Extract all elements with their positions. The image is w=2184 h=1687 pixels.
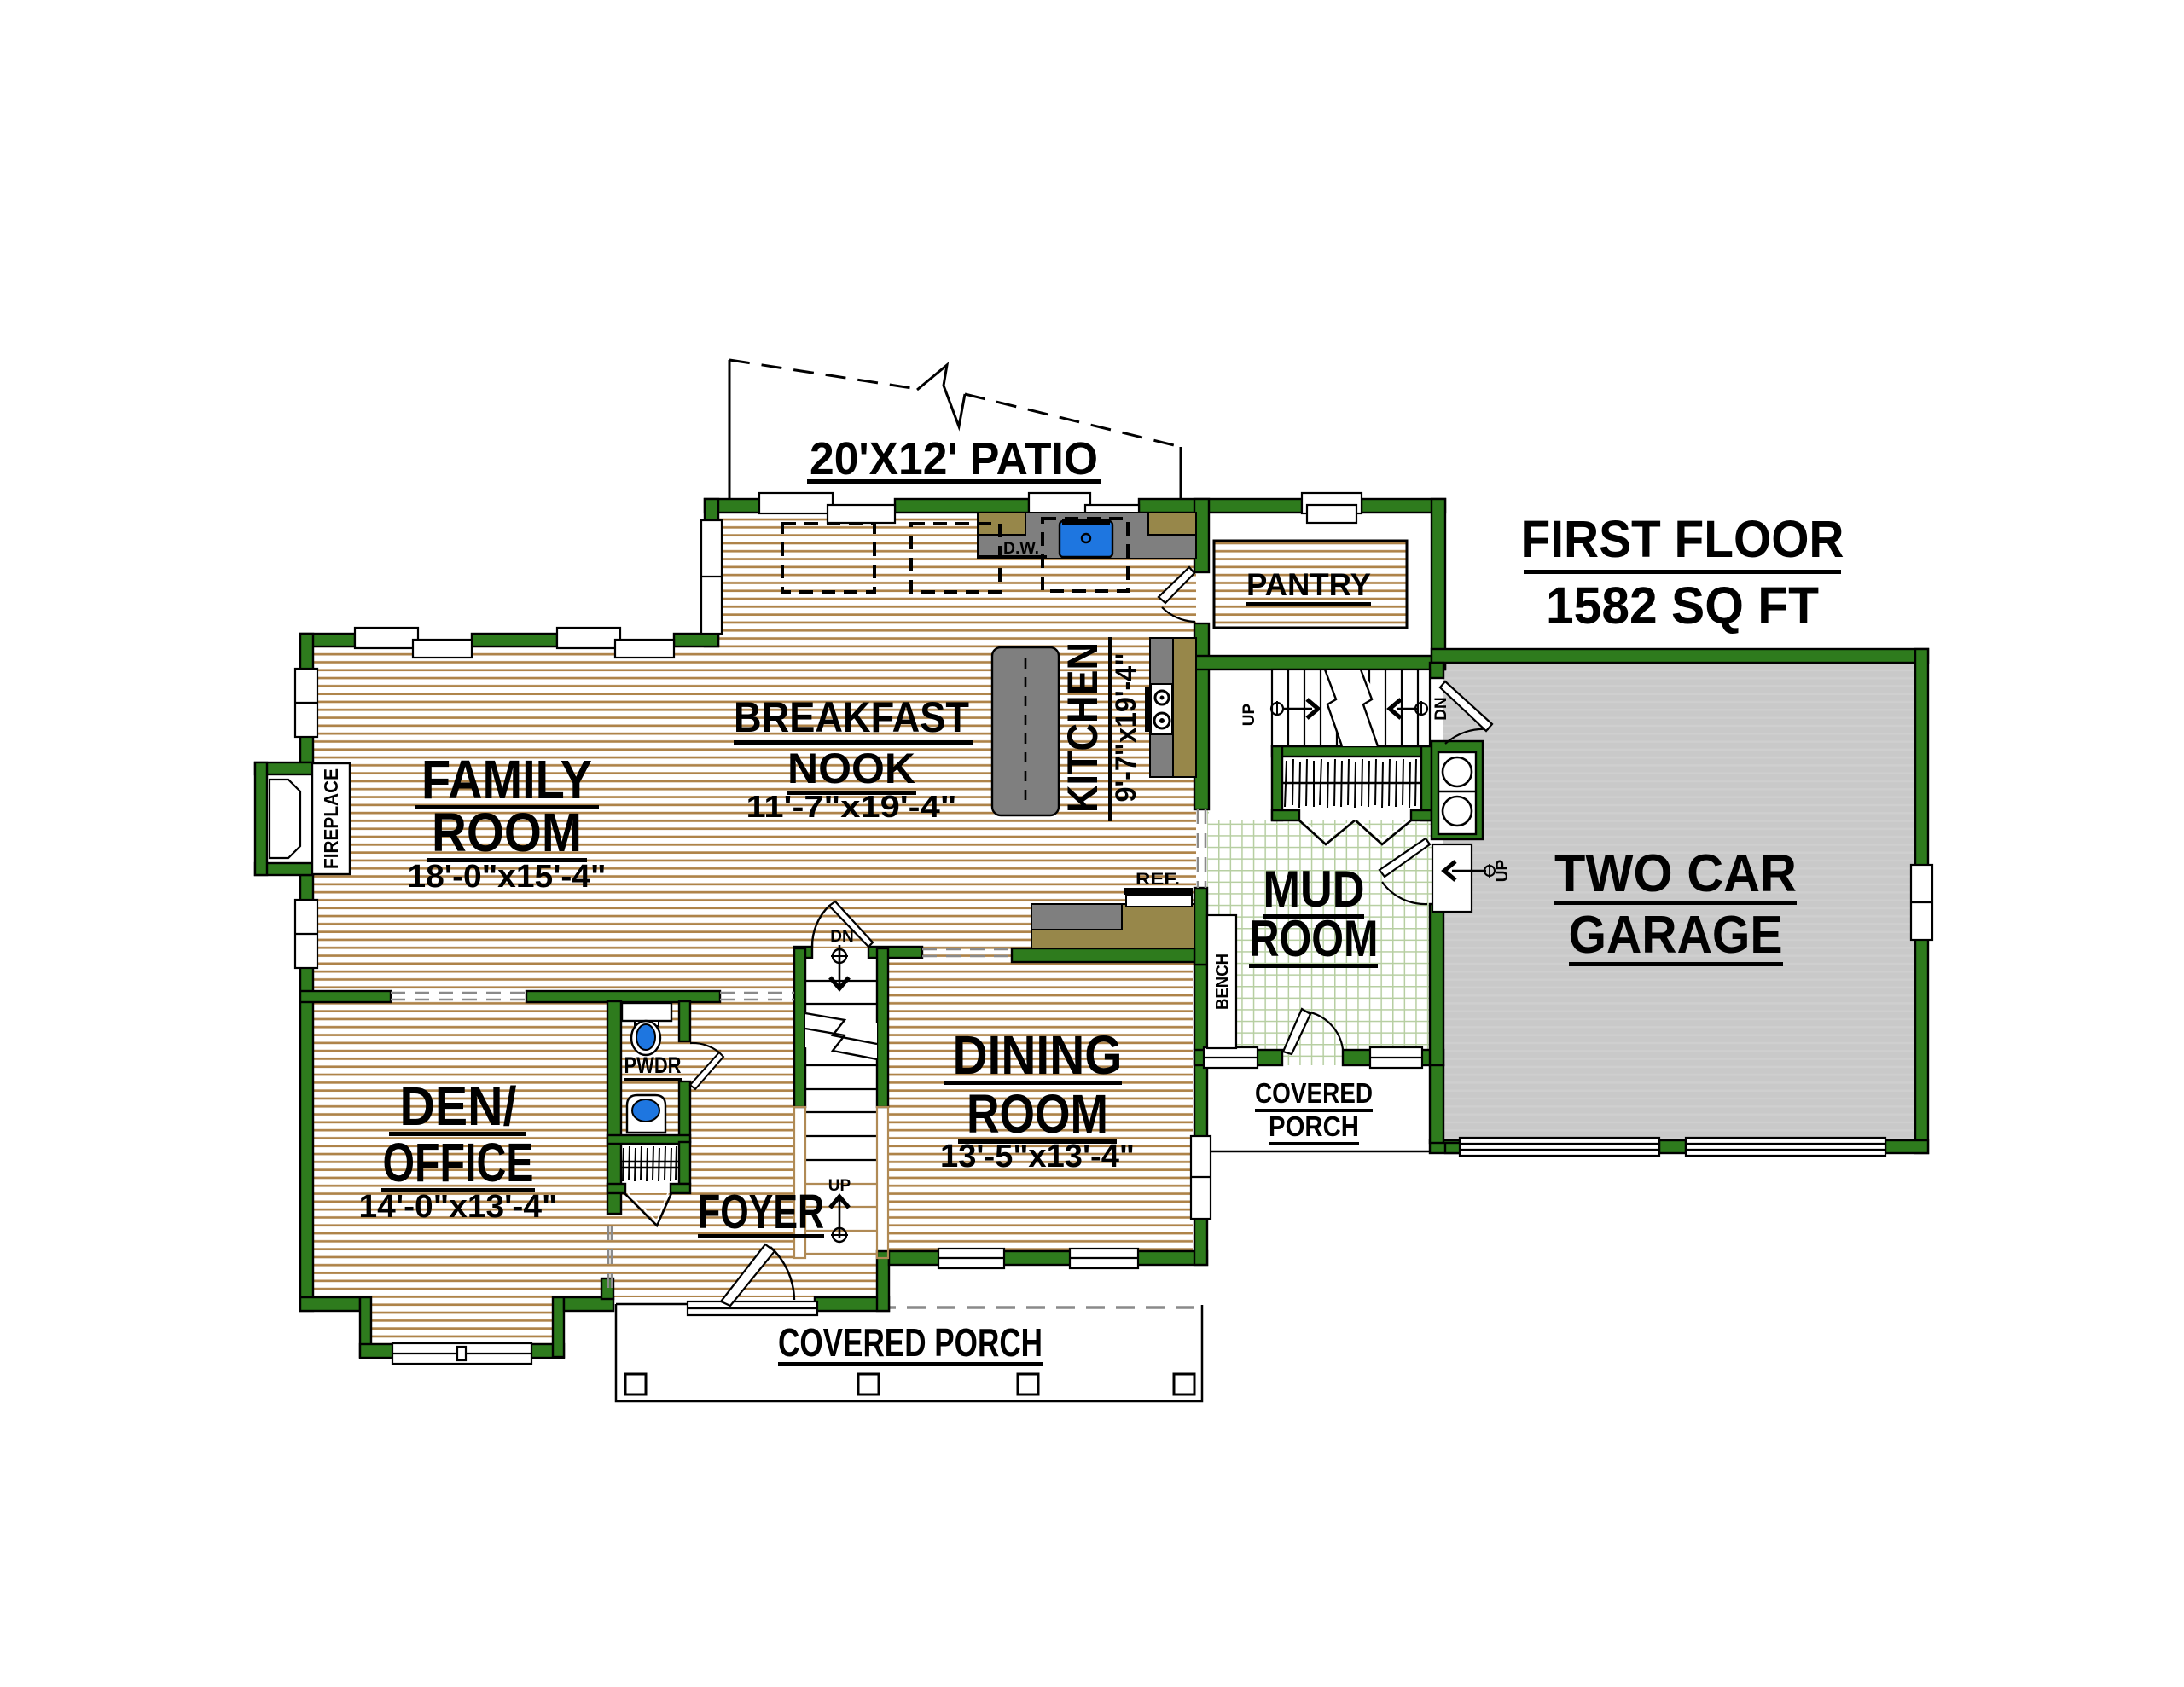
svg-text:OFFICE: OFFICE xyxy=(383,1132,534,1193)
svg-text:UP: UP xyxy=(1240,703,1258,726)
svg-text:KITCHEN: KITCHEN xyxy=(1059,642,1107,813)
svg-text:BENCH: BENCH xyxy=(1213,954,1233,1010)
svg-text:11'-7"x19'-4": 11'-7"x19'-4" xyxy=(746,789,957,824)
svg-text:PWDR: PWDR xyxy=(624,1052,682,1078)
svg-text:ROOM: ROOM xyxy=(432,802,582,863)
svg-text:COVERED PORCH: COVERED PORCH xyxy=(778,1320,1043,1365)
svg-text:DN: DN xyxy=(830,928,853,946)
svg-text:GARAGE: GARAGE xyxy=(1569,906,1783,965)
svg-text:NOOK: NOOK xyxy=(787,745,915,792)
svg-text:ROOM: ROOM xyxy=(1250,910,1379,967)
svg-text:FIREPLACE: FIREPLACE xyxy=(320,768,342,869)
svg-text:13'-5"x13'-4": 13'-5"x13'-4" xyxy=(940,1139,1135,1174)
svg-text:UP: UP xyxy=(828,1177,851,1195)
svg-text:FOYER: FOYER xyxy=(698,1185,824,1239)
svg-text:DEN/: DEN/ xyxy=(400,1075,517,1137)
svg-text:DN: DN xyxy=(1432,697,1450,720)
svg-text:ROOM: ROOM xyxy=(967,1083,1108,1145)
svg-text:TWO CAR: TWO CAR xyxy=(1554,844,1797,903)
svg-text:18'-0"x15'-4": 18'-0"x15'-4" xyxy=(408,859,607,895)
svg-text:PANTRY: PANTRY xyxy=(1246,567,1371,602)
svg-text:BREAKFAST: BREAKFAST xyxy=(734,693,969,741)
svg-text:REF.: REF. xyxy=(1136,871,1180,889)
svg-text:UP: UP xyxy=(1494,859,1512,882)
svg-text:14'-0"x13'-4": 14'-0"x13'-4" xyxy=(359,1189,558,1225)
svg-text:1582 SQ FT: 1582 SQ FT xyxy=(1546,577,1819,635)
svg-text:PORCH: PORCH xyxy=(1269,1110,1359,1142)
svg-text:MUD: MUD xyxy=(1263,861,1365,918)
svg-text:FIRST FLOOR: FIRST FLOOR xyxy=(1521,510,1844,568)
svg-text:9'-7"x19'-4": 9'-7"x19'-4" xyxy=(1110,653,1142,803)
svg-text:20'X12' PATIO: 20'X12' PATIO xyxy=(810,433,1098,484)
svg-text:COVERED: COVERED xyxy=(1255,1077,1373,1109)
svg-text:D.W.: D.W. xyxy=(1003,540,1039,558)
svg-text:DINING: DINING xyxy=(953,1024,1123,1086)
